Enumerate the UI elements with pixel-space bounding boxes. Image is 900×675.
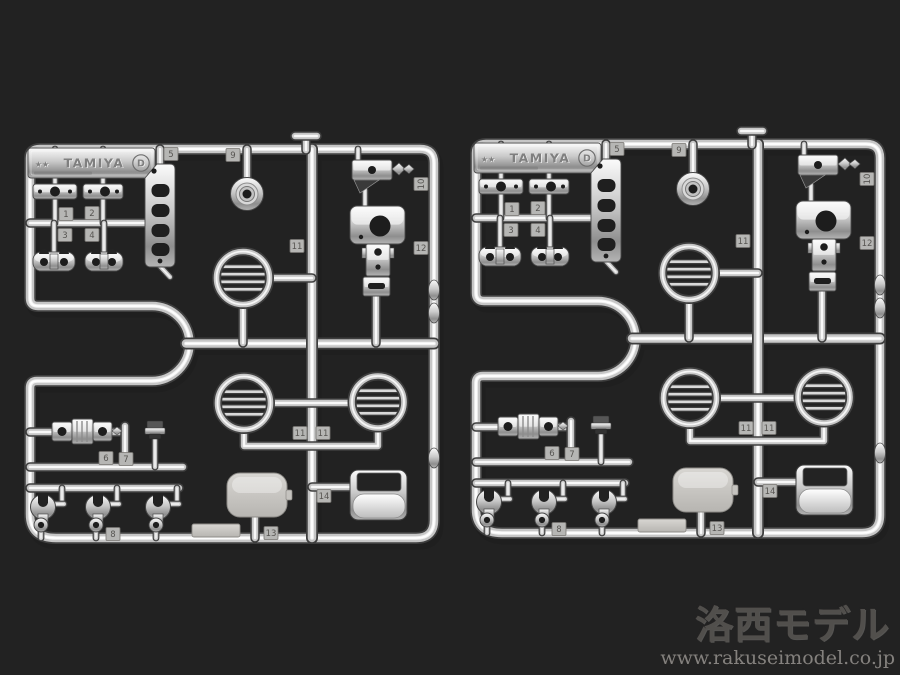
part-number-tag-2: 2 [85,207,99,220]
hole [243,190,252,199]
headlight-grille-part [352,376,404,428]
specular-highlight [678,472,728,488]
part-number-tag-5: 5 [164,148,178,161]
slot [484,492,494,502]
part-number: 11 [738,237,749,247]
brand-plate: ★★★★TAMIYATAMIYADD [474,143,601,173]
part-number-tag-13: 13 [264,527,278,540]
hinge-bracket-part [363,277,390,296]
hole [92,258,100,266]
part-number: 7 [569,450,574,460]
pulley-part [677,173,710,206]
louvre-strip-part [145,164,175,267]
hinge-bracket-part [809,272,836,291]
part-number: 6 [549,449,554,459]
hole [814,161,822,169]
part-number-tag-11: 11 [316,427,330,440]
hole [115,190,119,194]
runner-connector-nub [429,303,440,323]
hole [816,211,837,232]
clip-part [531,244,569,266]
part-number: 9 [676,146,681,156]
hole [506,253,514,261]
part-number: 11 [295,429,306,439]
clamp [93,422,112,441]
embossed-text: ★★ [481,155,495,164]
hole [152,204,170,217]
part-number-tag-3: 3 [58,229,72,242]
hole [38,190,42,194]
hole [598,219,616,232]
hole [58,427,67,436]
part-number: 11 [318,429,329,439]
grille-rim [352,376,404,428]
part-number: 3 [62,231,67,241]
part-number: 8 [556,525,561,535]
hole [504,422,513,431]
connector-cones [838,158,860,170]
clip-part [85,249,123,271]
hole [60,258,68,266]
hole [93,522,99,528]
part-number-tag-8: 8 [552,523,566,536]
hole [546,182,556,192]
sprue-left: ★★★★TAMIYATAMIYADD1234591011121111671481… [28,136,440,543]
part-number-tag-9: 9 [226,149,240,162]
hole [599,517,605,523]
hole [158,259,163,264]
runner-connector-nub [875,443,886,463]
fork-clamp-part [592,488,617,527]
fork-clamp-part [477,488,502,527]
part-number-tag-9: 9 [672,144,686,157]
hole [153,522,159,528]
hole [484,517,490,523]
grille-rim [663,247,716,300]
chrome-sprues-photo: ★★★★TAMIYATAMIYADD1234591011121111671481… [0,0,900,675]
brand-plate: ★★★★TAMIYATAMIYADD [28,148,155,178]
part-number: 6 [103,454,108,464]
part-number-tag-3: 3 [504,224,518,237]
grille-rim [798,371,850,423]
part-number: 13 [712,524,723,534]
headlight-grille-part [217,252,270,305]
hole [598,199,616,212]
hole [98,427,107,436]
hole [805,230,809,234]
part-number: 3 [508,226,513,236]
pulley-part [231,178,264,211]
hole [108,258,116,266]
part-number-tag-13: 13 [710,522,724,535]
hole [561,185,565,189]
part-number: 12 [862,239,873,249]
mounting-plate-part [479,179,523,194]
sprue-right: ★★★★TAMIYATAMIYADD1234591011121111671481… [474,131,886,538]
part-number-tag-12: 12 [860,237,874,250]
hole [484,185,488,189]
part-number: 12 [416,244,427,254]
part-number-tag-11: 11 [739,422,753,435]
slot [153,497,163,507]
embossed-text: D [137,159,145,170]
part-number-tag-6: 6 [545,447,559,460]
hole [514,185,518,189]
part-number-tag-14: 14 [763,485,777,498]
clamp-block [72,419,93,444]
hole [554,253,562,261]
part-number-tag-10: 10 [414,178,428,191]
mounting-plate-part [33,184,77,199]
hole [370,216,391,237]
louvre-strip-part [591,159,621,262]
fine-print-strip [480,167,538,170]
part-number: 9 [230,151,235,161]
part-number: 1 [63,210,68,220]
hinge-bracket-part [808,239,840,271]
clamp-assembly-part [498,414,568,439]
part-number: 11 [292,242,303,252]
headlight-grille-part [664,372,717,425]
part-number: 4 [535,226,540,236]
part-number-tag-11: 11 [290,240,304,253]
headlight-grille-part [663,247,716,300]
part-number: 4 [89,231,94,241]
hole [597,163,602,168]
photo-stage: ★★★★TAMIYATAMIYADD1234591011121111671481… [0,0,900,675]
part-number-tag-10: 10 [860,173,874,186]
part-number: 5 [614,145,619,155]
hole [544,422,553,431]
part-number-tag-11: 11 [736,235,750,248]
lamp-housing-part [350,470,407,520]
slot [368,283,385,289]
mounting-plate-part [529,179,569,194]
hole [152,243,170,256]
runner-connector-nub [429,448,440,468]
hole [539,517,545,523]
hole [486,253,494,261]
specular-highlight [232,477,282,493]
hole [496,182,506,192]
part-number-tag-1: 1 [505,203,519,216]
part-number: 2 [535,204,540,214]
hole [820,243,828,251]
hole [151,168,156,173]
slot [599,492,609,502]
headlight-bucket-part [796,201,851,239]
part-number: 7 [123,455,128,465]
embossed-text: TAMIYA [64,156,125,171]
grille-rim [664,372,717,425]
part-number-tag-2: 2 [531,202,545,215]
runner-connector-nub [875,275,886,295]
clip-part [479,244,521,266]
slot [814,278,831,284]
fork-clamp-part [532,488,557,527]
part-number: 14 [319,492,330,502]
slot [38,497,48,507]
hinge-bracket-part [362,244,394,276]
runner-connector-nub [875,298,886,318]
part-number: 8 [110,530,115,540]
hole [38,522,44,528]
part-number: 10 [417,179,427,190]
matte-bar-part [192,524,240,537]
part-number: 14 [765,487,776,497]
valve-part [591,416,611,434]
hole [100,187,110,197]
part-number-tag-14: 14 [317,490,331,503]
lamp-lens-plate-part [227,473,292,517]
connector-cones [392,163,414,175]
hole [40,258,48,266]
fork-clamp-part [31,493,56,532]
part-number: 11 [764,424,775,434]
part-number-tag-5: 5 [610,143,624,156]
fine-print-strip [34,172,92,175]
fork-clamp-part [86,493,111,532]
hole [821,259,826,264]
lamp-housing-part [796,465,853,515]
lamp-lens-plate-part [673,468,738,512]
headlight-bucket-part [350,206,405,244]
hole [375,264,380,269]
hole [538,253,546,261]
part-number-tag-8: 8 [106,528,120,541]
part-number: 10 [863,174,873,185]
embossed-text: TAMIYA [510,151,571,166]
runner-connector-nub [429,280,440,300]
part-number-tag-11: 11 [762,422,776,435]
part-number: 11 [741,424,752,434]
hole [374,248,382,256]
clamp [498,417,518,436]
clamp [539,417,558,436]
hole [68,190,72,194]
hole [88,190,92,194]
part-number-tag-4: 4 [531,224,545,237]
hole [534,185,538,189]
embossed-text: ★★ [35,160,49,169]
bracket-part [798,155,838,175]
hole [152,184,170,197]
fork-clamp-part [146,493,171,532]
valve-part [145,421,165,439]
hole [50,187,60,197]
part-number-tag-1: 1 [59,208,73,221]
matte-bar-part [638,519,686,532]
slot [93,497,103,507]
part-number: 13 [266,529,277,539]
part-number: 1 [509,205,514,215]
part-number: 5 [168,150,173,160]
grille-rim [217,252,270,305]
mounting-plate-part [83,184,123,199]
bracket-part [352,160,392,180]
hole [368,166,376,174]
embossed-text: D [583,154,591,165]
part-number: 2 [89,209,94,219]
part-number-tag-12: 12 [414,242,428,255]
clip-part [33,249,75,271]
part-number-tag-4: 4 [85,229,99,242]
slot [539,492,549,502]
hole [598,238,616,251]
part-number-tag-7: 7 [119,453,133,466]
clamp [52,422,72,441]
hole [359,235,363,239]
hole [152,224,170,237]
grille-rim [218,377,271,430]
part-number-tag-7: 7 [565,448,579,461]
part-number-tag-11: 11 [293,427,307,440]
headlight-grille-part [218,377,271,430]
hole [689,185,698,194]
headlight-grille-part [798,371,850,423]
clamp-assembly-part [52,419,122,444]
clamp-block [518,414,539,439]
hole [604,254,609,259]
hole [598,179,616,192]
part-number-tag-6: 6 [99,452,113,465]
